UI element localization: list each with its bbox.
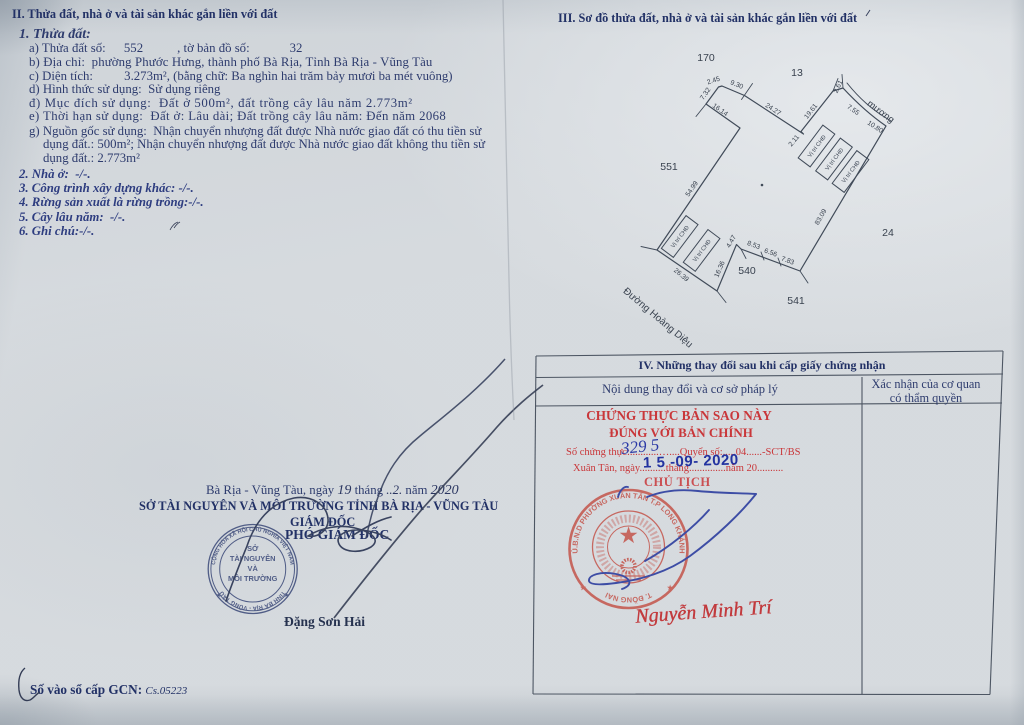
svg-text:SỞ: SỞ	[247, 544, 259, 553]
svg-text:VÀ: VÀ	[248, 564, 259, 573]
svg-text:T. ĐỒNG NAI: T. ĐỒNG NAI	[604, 591, 653, 606]
svg-text:★: ★	[284, 592, 289, 599]
svg-text:★: ★	[216, 592, 221, 599]
svg-text:★: ★	[618, 523, 639, 548]
svg-text:★: ★	[580, 584, 587, 592]
svg-text:★: ★	[667, 584, 674, 592]
svg-text:TÀI NGUYÊN: TÀI NGUYÊN	[230, 554, 276, 563]
